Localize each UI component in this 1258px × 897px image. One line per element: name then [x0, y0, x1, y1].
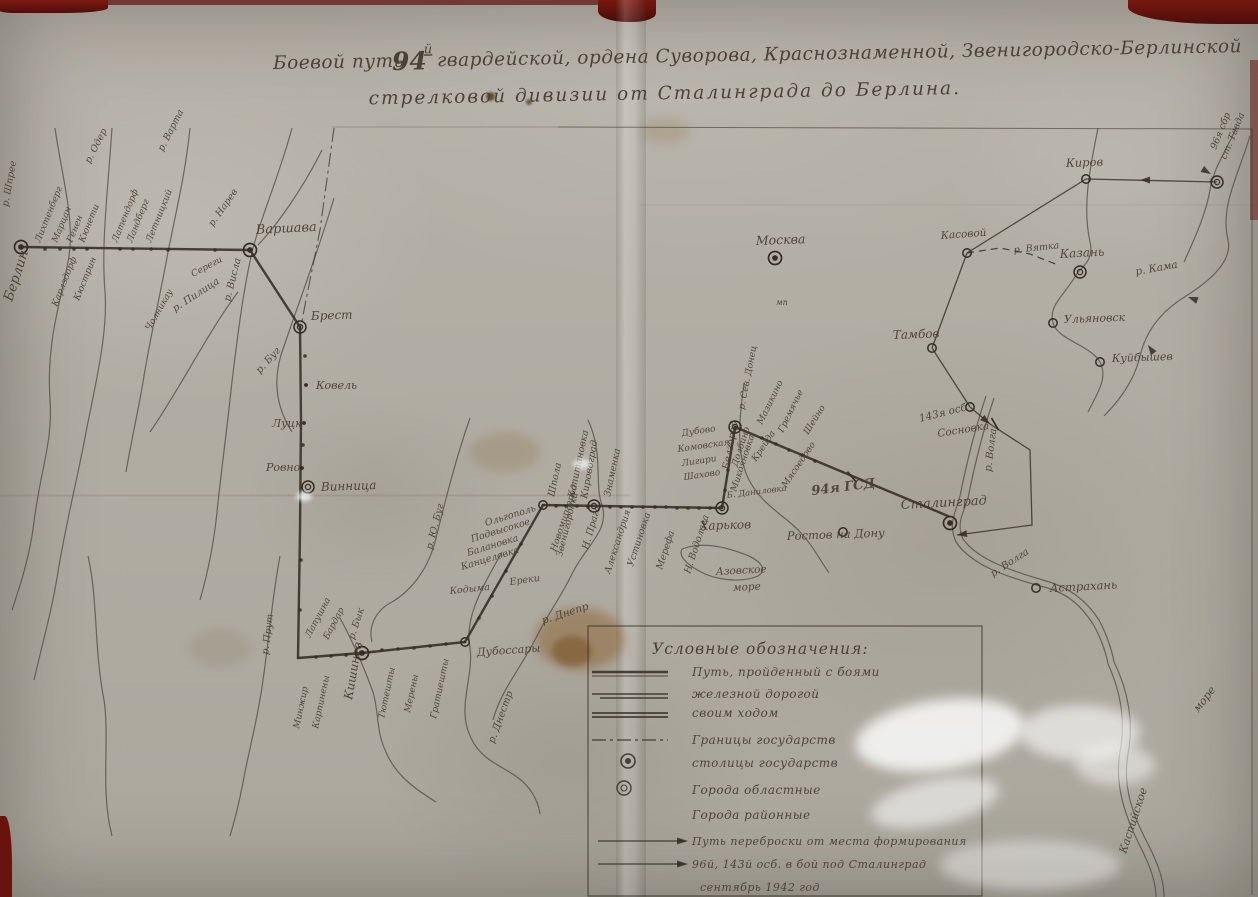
arrowhead — [1201, 166, 1213, 177]
town-dot — [303, 354, 307, 358]
city-marker — [772, 255, 778, 261]
city-label: Ростов на Дону — [786, 526, 886, 543]
map-drawing: БерлинВаршаваМоскваБрестВинницаКишиневДу… — [0, 0, 1258, 897]
city-label: Варшава — [254, 220, 317, 238]
map-label: р. Пилица — [171, 276, 222, 314]
map-label: Знаменка — [602, 447, 623, 497]
map-label: р. Прут — [260, 613, 276, 655]
map-label: Тютешты — [377, 666, 398, 719]
map-label: р. Бык — [346, 606, 367, 641]
legend-symbol — [617, 781, 631, 795]
legend-item-label: сентябрь 1942 год — [700, 881, 820, 894]
city-label: Дубоссары — [475, 642, 540, 659]
map-label: 143я осб — [918, 401, 969, 425]
city-label: Тамбов — [893, 326, 940, 342]
town-dot — [301, 443, 305, 447]
map-label: мп — [776, 298, 788, 307]
legend-item-label: Города областные — [691, 783, 821, 797]
map-title-number: 94 — [392, 46, 427, 76]
town-dot — [664, 505, 668, 509]
map-label: Дубово — [680, 423, 717, 439]
city-label: Берлин — [0, 248, 32, 304]
town-dot — [149, 247, 153, 251]
town-dot — [675, 506, 679, 510]
city-label: Астрахань — [1048, 577, 1117, 595]
town-dot — [504, 569, 508, 573]
town-dot — [380, 648, 384, 652]
city-marker — [947, 520, 953, 526]
map-title-line1: Боевой путь — [272, 51, 405, 74]
river — [12, 128, 70, 610]
city-label: Луцк — [271, 417, 302, 430]
town-dot — [608, 505, 612, 509]
town-dot — [213, 248, 217, 252]
town-dot — [412, 646, 416, 650]
city-marker — [304, 383, 308, 387]
transfer-path — [1086, 179, 1217, 182]
city-label: Касовой — [939, 227, 987, 242]
map-title-line1-rest: гвардейской, ордена Суворова, Краснознам… — [437, 36, 1242, 71]
map-label: Мерены — [403, 674, 421, 715]
river — [230, 556, 280, 836]
city-label: Брест — [310, 308, 353, 323]
legend-item-label: Города районные — [691, 808, 811, 822]
map-label: 94я ГСД — [811, 476, 877, 499]
town-dot — [477, 616, 481, 620]
map-label: р. Вятка — [1013, 240, 1060, 256]
map-label: Карлздорф — [50, 256, 79, 310]
battle-path — [250, 250, 300, 327]
glare — [1075, 745, 1155, 785]
city-label: Ковель — [315, 379, 357, 392]
city-label: Винница — [320, 478, 377, 494]
map-label: Сереги — [190, 255, 225, 280]
town-dot — [813, 459, 817, 463]
city-marker — [302, 421, 306, 425]
path-tick — [992, 418, 999, 430]
legend-symbol — [677, 861, 688, 868]
legend-symbol — [677, 838, 688, 845]
map-label: Н. Водолага — [682, 513, 712, 576]
map-label: море — [733, 581, 762, 594]
town-dot — [298, 608, 302, 612]
town-dot — [428, 644, 432, 648]
city-label: Москва — [755, 231, 806, 248]
map-label: р. Одер — [83, 127, 110, 166]
map-label: р. Волга — [983, 428, 999, 473]
map-label: Комовская — [676, 438, 730, 455]
map-label: Гремячье — [776, 388, 806, 435]
arrowhead — [1140, 177, 1150, 184]
city-label: Сталинград — [900, 494, 987, 513]
map-label: р. Днепр — [540, 600, 590, 627]
glare — [573, 459, 591, 469]
town-dot — [329, 654, 333, 658]
transfer-path — [967, 179, 1086, 253]
map-label: Шейно — [802, 403, 829, 437]
city-label: Ульяновск — [1064, 311, 1126, 326]
legend-item-label: 96й, 143й осб. в бой под Сталинград — [692, 858, 927, 871]
town-dot — [686, 506, 690, 510]
map-label: р. Ю. Буг — [424, 502, 446, 550]
town-dot — [641, 505, 645, 509]
legend-item-label: Путь, пройденный с боями — [691, 665, 880, 679]
town-dot — [444, 642, 448, 646]
map-label: море — [1190, 683, 1219, 714]
city-label: Кишинев — [341, 641, 365, 702]
river — [952, 396, 1108, 664]
map-label: Ереки — [508, 573, 541, 588]
town-dot — [619, 505, 623, 509]
town-dot — [787, 448, 791, 452]
town-dot — [344, 653, 348, 657]
map-label: Шахово — [682, 468, 721, 483]
map-label: р. Шпрее — [0, 160, 19, 208]
town-dot — [708, 506, 712, 510]
map-label: Шпола — [546, 461, 564, 498]
map-title: Боевой путь 94й гвардейской, ордена Суво… — [272, 28, 1243, 111]
legend-symbol — [625, 758, 631, 764]
legend-item-label: Границы государств — [691, 733, 836, 747]
city-label: Казань — [1058, 245, 1104, 261]
map-label: р. Сев. Донец — [737, 345, 759, 411]
town-dot — [118, 247, 122, 251]
river — [88, 556, 112, 836]
town-dot — [519, 542, 523, 546]
map-label: Летницкий — [144, 188, 175, 245]
legend-item-label: столицы государств — [692, 756, 838, 770]
legend-item-label: своим ходом — [692, 706, 779, 720]
river — [371, 418, 470, 642]
city-label: Куйбышев — [1111, 350, 1173, 365]
town-dot — [299, 558, 303, 562]
transfer-path — [932, 348, 970, 407]
map-photo: БерлинВаршаваМоскваБрестВинницаКишиневДу… — [0, 0, 1258, 897]
map-label: р. Висла — [222, 257, 243, 303]
map-label: р. Нарев — [206, 187, 240, 229]
legend-item-label: Путь переброски от места формирования — [691, 835, 967, 848]
legend-title: Условные обозначения: — [652, 640, 869, 658]
river — [960, 398, 1114, 662]
map-label: Мерефа — [654, 529, 677, 572]
city-marker — [1074, 266, 1086, 278]
town-dot — [697, 506, 701, 510]
city-marker — [247, 247, 253, 253]
city-label: Ровно — [265, 461, 301, 474]
map-label: Лигири — [680, 454, 717, 469]
town-dot — [630, 505, 634, 509]
town-dot — [396, 647, 400, 651]
town-dot — [554, 504, 558, 508]
town-dot — [43, 247, 47, 251]
arrowhead — [1187, 294, 1199, 304]
map-label: р. Кама — [1134, 259, 1178, 278]
map-label: Гратиешты — [429, 658, 452, 721]
legend-symbol — [621, 785, 627, 791]
city-label: Киров — [1065, 155, 1104, 170]
map-label: Кодыма — [448, 582, 491, 597]
map-label: Карпинены — [311, 675, 332, 731]
map-label: р. Варта — [156, 108, 187, 154]
glare — [940, 840, 1120, 890]
map-title-line2: стрелковой дивизии от Сталинграда до Бер… — [368, 78, 961, 109]
river — [1104, 136, 1250, 416]
town-dot — [58, 247, 62, 251]
legend-item-label: железной дорогой — [692, 687, 819, 701]
river — [1052, 272, 1103, 412]
town-dot — [774, 442, 778, 446]
town-dot — [85, 247, 89, 251]
town-dot — [166, 248, 170, 252]
city-marker — [300, 466, 304, 470]
town-dot — [131, 247, 135, 251]
town-dot — [653, 505, 657, 509]
glare — [296, 492, 312, 501]
town-dot — [72, 247, 76, 251]
map-label: Минжир — [292, 686, 311, 731]
town-dot — [314, 655, 318, 659]
city-marker — [305, 484, 310, 489]
map-label: р. Буг — [254, 346, 283, 376]
map-title-sup: й — [424, 42, 433, 57]
map-label: Н. Прага — [580, 504, 603, 551]
town-dot — [490, 594, 494, 598]
